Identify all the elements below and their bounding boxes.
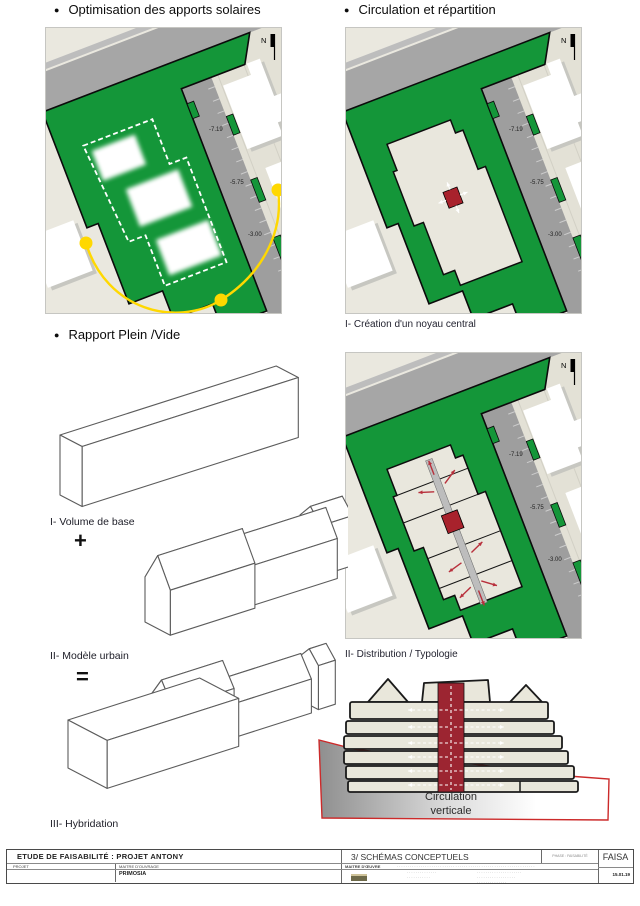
sheet-code: FAISA [598,852,633,862]
level-label: -7.19 [209,127,223,133]
label-hybridation: III- Hybridation [50,818,118,830]
section-caption-line1: Circulation [391,790,511,804]
title-solar-label: Optimisation des apports solaires [68,2,260,17]
sheet-title: 3/ SCHÉMAS CONCEPTUELS [351,852,536,862]
project-title: ETUDE DE FAISABILITÉ : PROJET ANTONY [17,852,337,861]
section-caption: Circulation verticale [391,790,511,819]
bullet-icon: ● [54,331,59,340]
sun-position-dot [215,294,228,307]
plan-rotated-layout [46,28,281,313]
microtext-line: ··········· [407,876,437,881]
modele-urbain-drawing [145,496,348,635]
site-plan-solar: N-7.19-5.75-3.00 [45,27,282,314]
level-label: -5.75 [230,180,244,186]
title-massing: ● Rapport Plein /Vide [54,327,180,342]
site-plan-distribution-drawing: N-7.19-5.75-3.00 [346,353,581,638]
architect-logo [351,874,367,881]
level-label: -7.19 [509,127,523,133]
titleblock: ETUDE DE FAISABILITÉ : PROJET ANTONY PRO… [6,849,634,884]
level-label: -5.75 [530,180,544,186]
bullet-icon: ● [54,6,59,15]
section-caption-line2: verticale [391,804,511,818]
title-circulation-label: Circulation et répartition [358,2,495,17]
site-plan-solar-drawing: N-7.19-5.75-3.00 [46,28,281,313]
volume-de-base-drawing [60,366,298,507]
titleblock-divider [598,867,633,868]
titleblock-divider [7,869,341,870]
titleblock-divider [541,850,542,863]
microtext-line: ·············· [477,881,522,886]
caption-distribution: II- Distribution / Typologie [345,649,458,660]
north-label: N [261,36,266,45]
massing-diagrams [36,344,348,814]
titleblock-divider [115,863,116,882]
label-volume-de-base: I- Volume de base [50,516,135,528]
plus-operator: + [74,528,87,554]
title-solar: ● Optimisation des apports solaires [54,2,261,17]
title-massing-label: Rapport Plein /Vide [68,327,180,342]
phase-label: PHASE : FAISABILITÉ [544,854,596,859]
equals-operator: = [76,664,89,690]
microtext-col-b: ····················· ··················… [477,871,522,886]
architect-label: MAITRE D'ŒUVRE [345,864,380,869]
site-plan-noyau: N-7.19-5.75-3.00 [345,27,582,314]
level-label: -3.00 [548,232,562,238]
level-label: -7.19 [509,452,523,458]
title-circulation: ● Circulation et répartition [344,2,496,17]
plan-rotated-layout [346,353,581,638]
site-plan-distribution: N-7.19-5.75-3.00 [345,352,582,639]
level-label: -3.00 [248,232,262,238]
site-plan-noyau-drawing: N-7.19-5.75-3.00 [346,28,581,313]
level-label: -5.75 [530,505,544,511]
bullet-icon: ● [344,6,349,15]
project-label: PROJET [13,864,29,869]
level-label: -3.00 [548,557,562,563]
sun-position-dot [80,237,93,250]
north-label: N [561,361,566,370]
plan-rotated-layout [346,28,581,313]
section-building [344,679,578,792]
label-modele-urbain: II- Modèle urbain [50,650,129,662]
hybridation-drawing [68,643,335,788]
client-label: MAITRE D'OUVRAGE [119,864,159,869]
architect-microtext: ········································… [397,865,592,870]
microtext-col-a: ·············· ··········· [407,871,437,881]
client-name: PRIMOSIA [119,871,146,877]
north-label: N [561,36,566,45]
sheet-date: 15.01.19 [598,872,630,877]
titleblock-divider [341,850,342,883]
caption-noyau: I- Création d'un noyau central [345,319,476,330]
